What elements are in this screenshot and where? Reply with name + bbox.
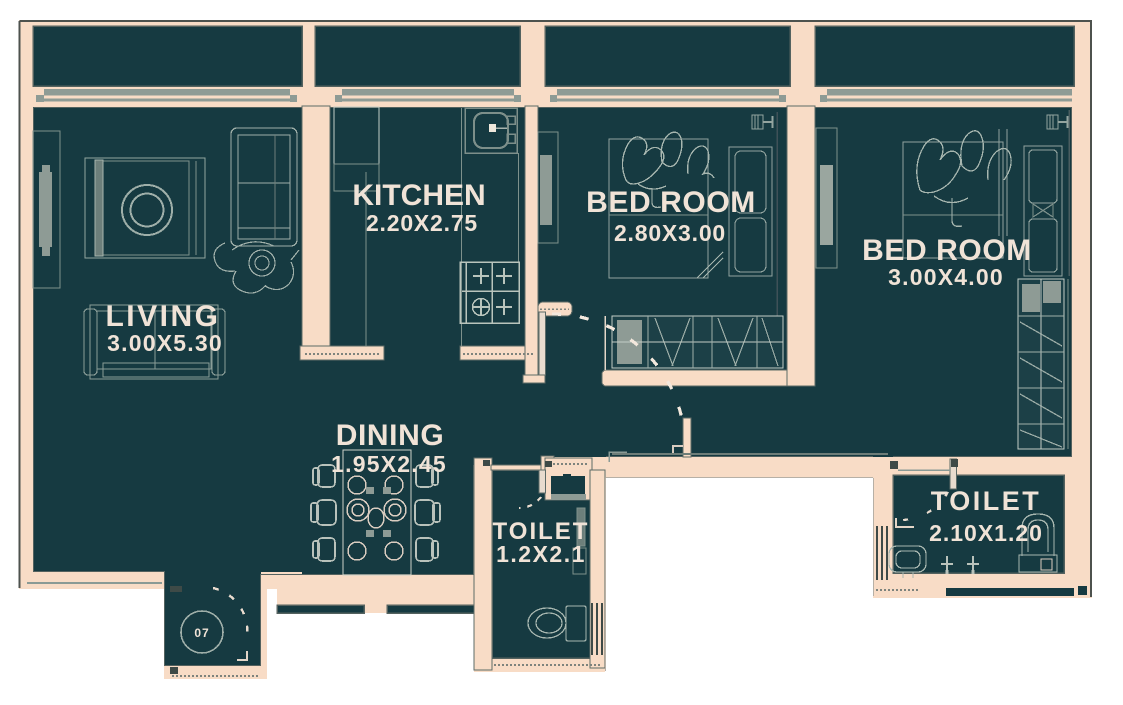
svg-text:2.80X3.00: 2.80X3.00 xyxy=(614,220,726,246)
svg-text:1.95X2.45: 1.95X2.45 xyxy=(331,451,447,477)
svg-text:BED ROOM: BED ROOM xyxy=(586,186,756,219)
svg-text:3.00X5.30: 3.00X5.30 xyxy=(107,330,223,356)
svg-text:TOILET: TOILET xyxy=(931,486,1042,516)
svg-text:BED ROOM: BED ROOM xyxy=(862,234,1032,267)
svg-text:DINING: DINING xyxy=(336,419,445,452)
svg-text:LIVING: LIVING xyxy=(105,300,220,333)
svg-text:3.00X4.00: 3.00X4.00 xyxy=(888,264,1004,290)
svg-text:KITCHEN: KITCHEN xyxy=(352,179,485,212)
svg-text:1.2X2.1: 1.2X2.1 xyxy=(496,541,586,567)
svg-text:2.20X2.75: 2.20X2.75 xyxy=(366,210,478,236)
svg-text:2.10X1.20: 2.10X1.20 xyxy=(929,520,1043,546)
svg-text:07: 07 xyxy=(194,626,209,640)
